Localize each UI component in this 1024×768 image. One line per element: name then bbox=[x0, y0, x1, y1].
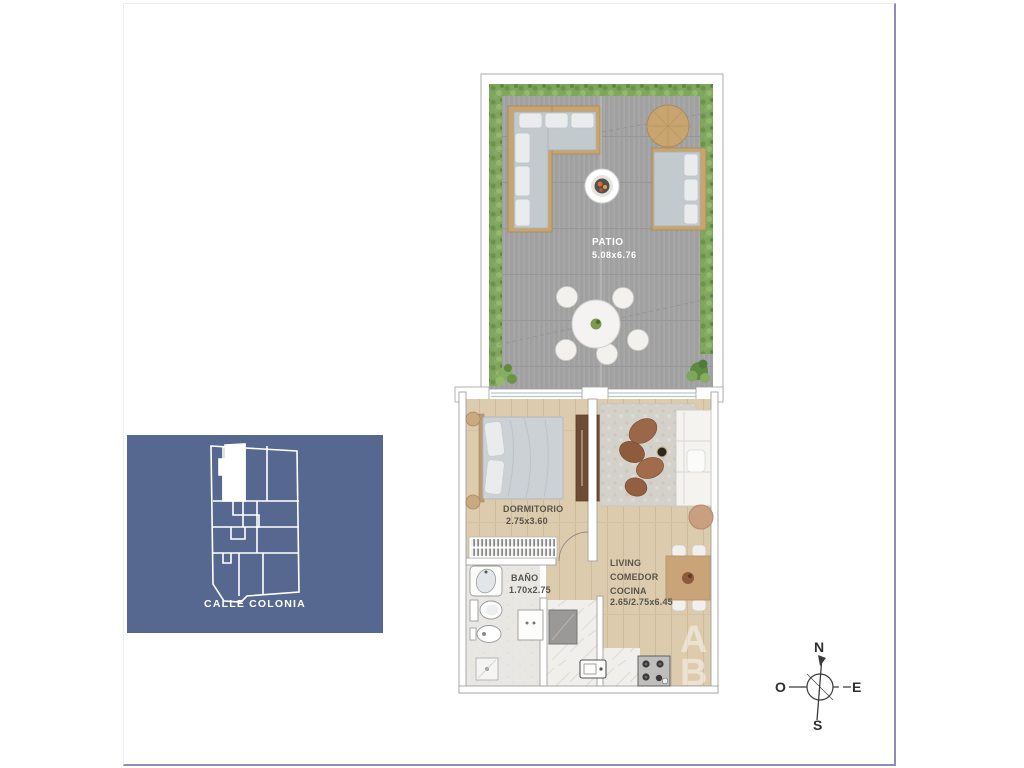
compass-east-label: E bbox=[852, 679, 861, 695]
compass-west-label: O bbox=[775, 679, 786, 695]
keyplan-panel: CALLE COLONIA bbox=[127, 435, 383, 633]
living-label: LIVING COMEDOR COCINA bbox=[610, 556, 658, 598]
patio-dims: 5.08x6.76 bbox=[592, 250, 637, 261]
patio-area bbox=[481, 74, 723, 396]
hedge-top bbox=[489, 84, 713, 96]
bano-label: BAÑO bbox=[511, 573, 538, 584]
living-line1: LIVING bbox=[610, 556, 658, 570]
compass: N S E O bbox=[755, 625, 890, 740]
dormitorio-label: DORMITORIO bbox=[503, 504, 563, 515]
toilet bbox=[470, 600, 502, 621]
bano-dims: 1.70x2.75 bbox=[509, 585, 551, 596]
kitchen-sink bbox=[580, 660, 606, 678]
pillow bbox=[484, 421, 505, 457]
sink-vanity bbox=[470, 566, 502, 596]
living-dims: 2.65/2.75x6.45 bbox=[610, 597, 673, 608]
stove bbox=[638, 656, 670, 686]
dormitorio-dims: 2.75x3.60 bbox=[506, 516, 548, 527]
watermark: AR BE bbox=[680, 624, 711, 696]
patio-label: PATIO bbox=[592, 237, 624, 250]
compass-south-label: S bbox=[813, 717, 822, 733]
compass-north-label: N bbox=[814, 639, 824, 655]
appliance bbox=[549, 610, 577, 644]
fire-pit bbox=[585, 169, 619, 203]
pillow bbox=[484, 459, 504, 495]
floorplan-canvas: PATIO 5.08x6.76 DORMITORIO 2.75x3.60 BAÑ… bbox=[0, 0, 1024, 768]
living-line2: COMEDOR bbox=[610, 570, 658, 584]
sofa bbox=[676, 410, 711, 506]
nightstand bbox=[466, 495, 480, 509]
side-table bbox=[657, 447, 667, 457]
patio-round-table bbox=[647, 105, 689, 147]
hedge-left bbox=[489, 84, 502, 386]
outdoor-sofa-2 bbox=[652, 148, 706, 230]
keyplan-street-label: CALLE COLONIA bbox=[127, 598, 383, 610]
bedroom-closet bbox=[469, 537, 557, 558]
round-side-table bbox=[689, 505, 713, 529]
living-line3: COCINA bbox=[610, 584, 658, 598]
shower-drain bbox=[476, 658, 498, 680]
divider-wall bbox=[588, 399, 597, 561]
bidet bbox=[470, 626, 501, 643]
bath-cabinet bbox=[518, 610, 543, 640]
dorm-bath-wall bbox=[466, 558, 556, 565]
watermark-line2: BE bbox=[680, 657, 711, 690]
nightstand bbox=[466, 412, 480, 426]
bed bbox=[466, 412, 563, 509]
